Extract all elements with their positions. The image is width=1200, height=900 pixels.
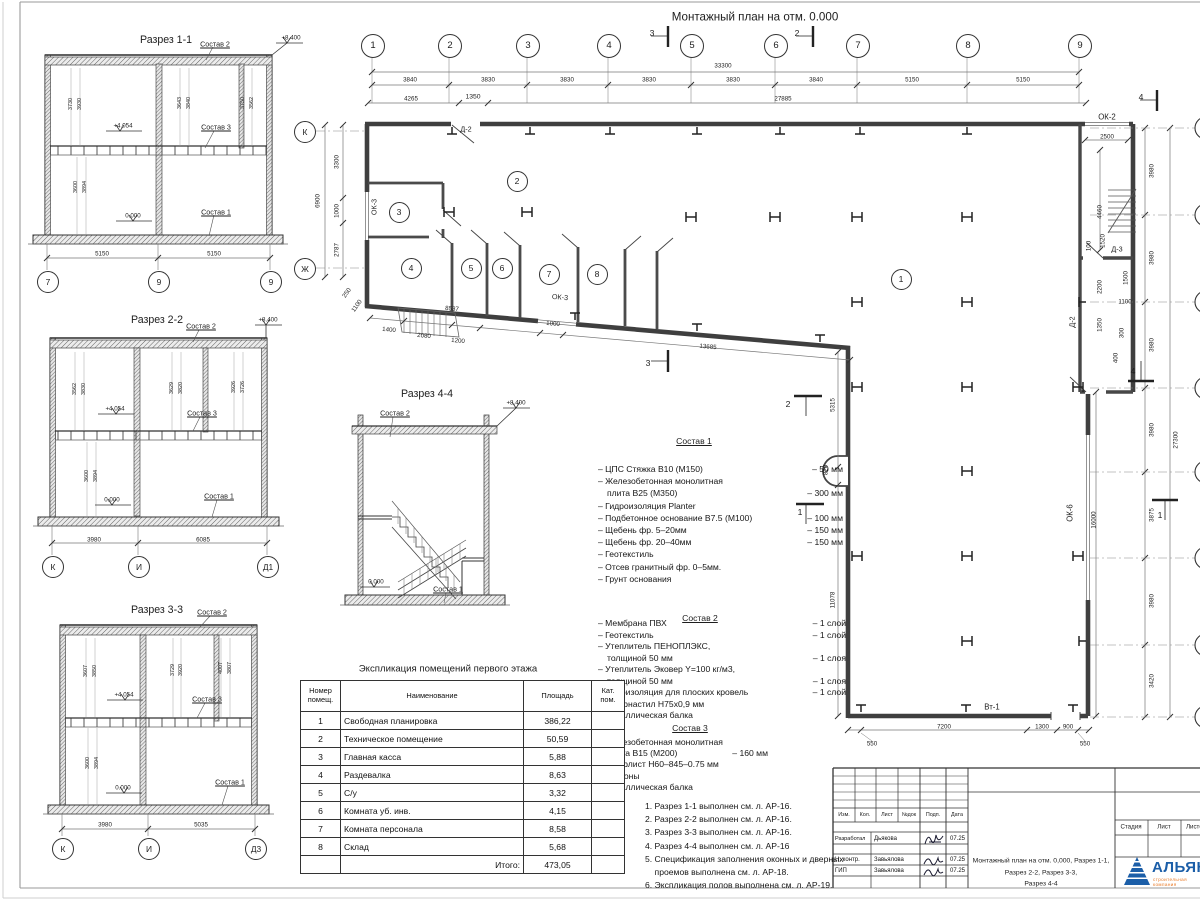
dim-label: 3820 — [178, 382, 184, 394]
dim-label: 6085 — [196, 537, 210, 544]
cell — [592, 856, 625, 874]
dim-label: 11078 — [830, 592, 837, 609]
room-number: 3 — [389, 202, 410, 223]
layer-item: – Подбетонное основание В7.5 (М100)– 100… — [598, 512, 843, 524]
dim-label: 6900 — [315, 194, 322, 208]
stamp-col-header: Кол. — [860, 812, 871, 818]
table-title: Экспликация помещений первого этажа — [359, 664, 537, 675]
note-line: 1. Разрез 1-1 выполнен см. л. АР-16. — [645, 800, 844, 813]
cell: 1 — [301, 712, 341, 730]
stamp-col-header: Подп. — [926, 812, 940, 818]
level-mark: 0.000 — [115, 785, 130, 792]
dim-label: 3830 — [81, 383, 87, 395]
layer-ref: Состав 2 — [200, 40, 230, 49]
section-2-2-drawing — [33, 319, 284, 555]
dim-label: 3750 — [240, 97, 246, 109]
note-line: 5. Спецификация заполнения оконных и две… — [645, 853, 844, 866]
stamp-name: Завьялова — [874, 868, 904, 874]
col-header: Кат. пом. — [592, 681, 625, 712]
dim-label: 3894 — [94, 757, 100, 769]
section-mark: 3 — [650, 28, 655, 38]
stamp-date: 07.25 — [950, 857, 965, 863]
dim-label: 300 — [1119, 328, 1126, 338]
axis-bubble: И — [128, 556, 150, 578]
axis-bubble: 1 — [361, 34, 385, 58]
table-row: 4Раздевалка8,63 — [301, 766, 625, 784]
axis-bubble: К — [42, 556, 64, 578]
room-number: 7 — [539, 264, 560, 285]
dim-label: 3562 — [72, 383, 78, 395]
dim-label: 3980 — [1149, 164, 1156, 178]
cell: 7 — [301, 820, 341, 838]
window-label: ОК-3 — [552, 292, 569, 302]
dim-label: 1350 — [1097, 318, 1104, 332]
note-line: 4. Разрез 4-4 выполнен см. л. АР-16 — [645, 840, 844, 853]
dim-label: 3980 — [98, 822, 112, 829]
layer-item: – Металлическая балка — [598, 710, 846, 722]
dim-label: 3840 — [809, 77, 823, 84]
stamp-col-header: №док — [902, 812, 916, 818]
dim-label: 3840 — [403, 77, 417, 84]
dim-label: 550 — [1080, 741, 1090, 748]
doc-title-line: Разрез 2-2, Разрез 3-3, — [1005, 870, 1077, 877]
axis-bubble: 2 — [438, 34, 462, 58]
layer-item: – Щебень фр. 20–40мм– 150 мм — [598, 536, 843, 548]
layer-item: – Профнастил Н75х0,9 мм — [598, 699, 846, 711]
doc-title-line: Монтажный план на отм. 0,000, Разрез 1-1… — [973, 858, 1110, 865]
dim-label: 5315 — [830, 398, 837, 412]
section-mark: 1 — [1158, 510, 1163, 520]
dim-label: 16000 — [1091, 511, 1098, 528]
stamp-role: Разработал — [835, 836, 865, 842]
cell: 8 — [301, 838, 341, 856]
table-total-row: Итого: 473,05 — [301, 856, 625, 874]
axis-bubble: 7 — [846, 34, 870, 58]
dim-label: 27885 — [774, 96, 791, 103]
stamp-col-header: Лист — [881, 812, 893, 818]
level-mark: 0.000 — [104, 497, 119, 504]
axis-bubble: Д1 — [257, 556, 279, 578]
layer-item: – Утеплитель ПЕНОПЛЭКС, — [598, 641, 846, 653]
section-4-4-drawing — [340, 402, 530, 605]
dim-label: 3840 — [186, 97, 192, 109]
section-mark: 2 — [795, 28, 800, 38]
dim-label: 13685 — [699, 343, 717, 351]
dim-label: 5150 — [1016, 77, 1030, 84]
layer-item: – ЦПС Стяжка В10 (М150)– 50 мм — [598, 463, 843, 475]
door-label: Д-2 — [1068, 316, 1077, 327]
cell: Главная касса — [341, 748, 524, 766]
layer-item: толщиной 50 мм– 1 слоя — [598, 676, 846, 688]
cell: 4 — [301, 766, 341, 784]
door-label: Д-2 — [460, 125, 471, 134]
explication-table: Номер помещ. Наименование Площадь Кат. п… — [300, 680, 625, 874]
cell: 386,22 — [524, 712, 592, 730]
section-3-3-drawing — [43, 616, 274, 836]
layer-item: плита В25 (М350)– 300 мм — [598, 487, 843, 499]
cell — [592, 784, 625, 802]
cell: 3,32 — [524, 784, 592, 802]
table-row: 6Комната уб. инв.4,15 — [301, 802, 625, 820]
dim-label: 1520 — [1100, 234, 1107, 248]
stamp-name: Дьякова — [874, 836, 897, 842]
dim-label: 7200 — [937, 724, 951, 731]
layer-item: – Отсев гранитный фр. 0–5мм. — [598, 561, 843, 573]
layer-item: – Пароизоляция для плоских кровель– 1 сл… — [598, 687, 846, 699]
section-title: Разрез 1-1 — [140, 34, 192, 46]
col-header: Номер помещ. — [301, 681, 341, 712]
window-label: ОК-2 — [1098, 113, 1116, 122]
dim-label: 4265 — [404, 96, 418, 103]
dim-label: 3980 — [1149, 594, 1156, 608]
cell: Комната персонала — [341, 820, 524, 838]
cell: С/у — [341, 784, 524, 802]
section-mark: 4 — [1131, 366, 1136, 376]
gate-label: Вт-1 — [984, 703, 999, 712]
layer-item: – Геотекстиль — [598, 548, 843, 560]
dim-label: 3850 — [92, 665, 98, 677]
axis-bubble: К — [52, 838, 74, 860]
dim-label: 3980 — [1149, 251, 1156, 265]
col-header: Площадь — [524, 681, 592, 712]
cell — [592, 730, 625, 748]
window-label: ОК-6 — [1066, 504, 1075, 522]
table-row: 8Склад5,68 — [301, 838, 625, 856]
layer-ref: Состав 2 — [186, 322, 216, 331]
logo-icon — [1122, 857, 1152, 886]
level-mark: +4.054 — [105, 406, 124, 413]
axis-bubble: 9 — [148, 271, 170, 293]
dim-label: 3807 — [227, 662, 233, 674]
window-label: ОК-3 — [370, 199, 379, 215]
dim-label: 3643 — [177, 97, 183, 109]
room-number: 5 — [461, 258, 482, 279]
level-mark: +8.400 — [506, 400, 525, 407]
dim-label: 1200 — [451, 337, 465, 345]
layer-item: – Щебень фр. 5–20мм– 150 мм — [598, 524, 843, 536]
axis-bubble: 8 — [956, 34, 980, 58]
dim-label: 1350 — [465, 94, 480, 101]
dim-label: 5150 — [95, 251, 109, 258]
stamp-role: ГИП — [835, 868, 847, 874]
section-mark: 2 — [786, 399, 791, 409]
cell — [592, 820, 625, 838]
dim-label: 3607 — [83, 665, 89, 677]
level-mark: +8.400 — [258, 317, 277, 324]
axis-bubble: 3 — [516, 34, 540, 58]
axis-bubble: 6 — [764, 34, 788, 58]
layer-item: – Геотекстиль– 1 слой — [598, 630, 846, 642]
col-header: Наименование — [341, 681, 524, 712]
dim-label: 900 — [1063, 724, 1073, 731]
dim-label: 3830 — [726, 77, 740, 84]
level-mark: +4.054 — [114, 692, 133, 699]
dim-label: 3629 — [169, 382, 175, 394]
stamp-date: 07.25 — [950, 836, 965, 842]
stamp-col-header: Изм. — [838, 812, 850, 818]
room-number: 1 — [891, 269, 912, 290]
note-line: 6. Экспликация полов выполнена см. л. АР… — [645, 879, 844, 892]
note-line: проемов выполнена см. л. АР-18. — [645, 866, 844, 879]
layer-ref: Состав 1 — [215, 778, 245, 787]
room-number: 8 — [587, 264, 608, 285]
dim-label: 1000 — [546, 320, 560, 328]
table-row: 5С/у3,32 — [301, 784, 625, 802]
dim-label: 3894 — [82, 181, 88, 193]
room-number: 2 — [507, 171, 528, 192]
cell: Склад — [341, 838, 524, 856]
stamp-role: Н. контр. — [835, 857, 860, 863]
dim-label: 3980 — [87, 537, 101, 544]
notes-list: 1. Разрез 1-1 выполнен см. л. АР-16.2. Р… — [645, 800, 844, 892]
layer-ref: Состав 1 — [433, 585, 463, 594]
dim-label: 4460 — [1097, 205, 1104, 219]
dim-label: 3926 — [231, 381, 237, 393]
note-line: 3. Разрез 3-3 выполнен см. л. АР-16. — [645, 826, 844, 839]
axis-bubble: 4 — [597, 34, 621, 58]
dim-label: 3729 — [170, 664, 176, 676]
dim-label: 3830 — [481, 77, 495, 84]
table-row: 7Комната персонала8,58 — [301, 820, 625, 838]
note-line: 2. Разрез 2-2 выполнен см. л. АР-16. — [645, 813, 844, 826]
section-title: Разрез 2-2 — [131, 314, 183, 326]
axis-bubble: 9 — [260, 271, 282, 293]
table-row: 3Главная касса5,88 — [301, 748, 625, 766]
dim-label: 1300 — [1035, 724, 1049, 731]
layer-ref: Состав 3 — [187, 409, 217, 418]
dim-label: 5150 — [207, 251, 221, 258]
layer-ref: Состав 1 — [204, 492, 234, 501]
section-title: Разрез 3-3 — [131, 604, 183, 616]
table-row: 2Техническое помещение50,59 — [301, 730, 625, 748]
dim-label: 5035 — [194, 822, 208, 829]
dim-label: 3894 — [93, 470, 99, 482]
cell: 50,59 — [524, 730, 592, 748]
cell: 5 — [301, 784, 341, 802]
cell — [592, 748, 625, 766]
sostav1-list: – ЦПС Стяжка В10 (М150)– 50 мм– Железобе… — [598, 463, 843, 585]
layer-item: – Грунт основания — [598, 573, 843, 585]
level-mark: 0.000 — [368, 579, 383, 586]
plan-title: Монтажный план на отм. 0.000 — [672, 11, 839, 24]
dim-label: 3726 — [240, 381, 246, 393]
dim-label: 3920 — [178, 664, 184, 676]
logo-subtitle: строительная компания — [1153, 877, 1200, 887]
dim-label: 2787 — [334, 243, 341, 257]
dim-label: 3980 — [1149, 338, 1156, 352]
axis-bubble: К — [294, 121, 316, 143]
level-mark: 0.000 — [125, 213, 140, 220]
dim-label: 3875 — [1149, 508, 1156, 522]
dim-label: 2500 — [1100, 134, 1114, 141]
dim-label: 3600 — [73, 181, 79, 193]
dim-label: 3830 — [642, 77, 656, 84]
section-flags — [651, 26, 1178, 524]
sostav3-title: Состав 3 — [672, 723, 708, 733]
dim-label: 1400 — [382, 326, 396, 334]
dim-label: 1500 — [1123, 271, 1130, 285]
stamp-col-header: Дата — [951, 812, 963, 818]
dim-label: 3420 — [1149, 674, 1156, 688]
section-mark: 3 — [646, 358, 651, 368]
dim-label: 550 — [867, 741, 877, 748]
dim-label: 3600 — [84, 470, 90, 482]
stamp-col-header: Листов — [1186, 824, 1200, 831]
layer-ref: Состав 3 — [201, 123, 231, 132]
dim-label: 3830 — [560, 77, 574, 84]
dim-label: 400 — [1113, 353, 1120, 363]
cell — [301, 856, 341, 874]
axis-bubble: Ж — [294, 258, 316, 280]
cell: Техническое помещение — [341, 730, 524, 748]
cell: Комната уб. инв. — [341, 802, 524, 820]
dim-label: 3980 — [1149, 423, 1156, 437]
dim-label: 2080 — [417, 332, 431, 340]
dim-label: 3300 — [334, 155, 341, 169]
sostav1-title: Состав 1 — [676, 436, 712, 446]
dim-label: 5150 — [905, 77, 919, 84]
dim-label: 2200 — [1097, 280, 1104, 294]
dim-label: 1100 — [1118, 299, 1131, 306]
right-axis-bubbles — [1195, 117, 1200, 728]
stamp-col-header: Стадия — [1120, 824, 1141, 831]
table-header-row: Номер помещ. Наименование Площадь Кат. п… — [301, 681, 625, 712]
axis-bubble: Д3 — [245, 838, 267, 860]
dim-label: 27300 — [1173, 431, 1180, 448]
dim-label: 3730 — [68, 98, 74, 110]
logo-text: АЛЬЯНС — [1152, 859, 1200, 876]
stamp-name: Завьялова — [874, 857, 904, 863]
layer-ref: Состав 3 — [192, 695, 222, 704]
axis-bubble: 7 — [37, 271, 59, 293]
doc-title-line: Разрез 4-4 — [1024, 881, 1057, 888]
stamp-date: 07.25 — [950, 868, 965, 874]
dim-label: 100 — [1086, 241, 1093, 251]
cell: 3 — [301, 748, 341, 766]
level-mark: +4.054 — [113, 123, 132, 130]
cell — [592, 712, 625, 730]
dim-label: 3930 — [77, 98, 83, 110]
table-row: 1Свободная планировка386,22 — [301, 712, 625, 730]
door-label: Д-3 — [1111, 245, 1122, 254]
cell — [592, 838, 625, 856]
stamp-col-header: Лист — [1157, 824, 1170, 831]
cell: Свободная планировка — [341, 712, 524, 730]
dim-label: 3562 — [249, 97, 255, 109]
cell: 8,63 — [524, 766, 592, 784]
dim-label: 4007 — [218, 662, 224, 674]
room-number: 6 — [492, 258, 513, 279]
section-mark: 4 — [1139, 92, 1144, 102]
cell — [592, 766, 625, 784]
dim-label: 33300 — [714, 63, 731, 70]
section-1-1-drawing — [28, 37, 303, 270]
cell: 5,68 — [524, 838, 592, 856]
partitions — [368, 183, 657, 329]
layer-ref: Состав 1 — [201, 208, 231, 217]
cell: 4,15 — [524, 802, 592, 820]
cell — [592, 802, 625, 820]
cell: 2 — [301, 730, 341, 748]
dim-label: 3600 — [85, 757, 91, 769]
sostav2-list: – Мембрана ПВХ– 1 слой– Геотекстиль– 1 с… — [598, 618, 846, 722]
layer-item: – Утеплитель Эковер Y=100 кг/м3, — [598, 664, 846, 676]
axis-bubble: 9 — [1068, 34, 1092, 58]
total-label: Итого: — [341, 856, 524, 874]
layer-item: – Мембрана ПВХ– 1 слой — [598, 618, 846, 630]
total-value: 473,05 — [524, 856, 592, 874]
room-number: 4 — [401, 258, 422, 279]
signature — [924, 835, 943, 876]
axis-bubble: И — [138, 838, 160, 860]
cell: Раздевалка — [341, 766, 524, 784]
dim-label: 1000 — [334, 204, 341, 218]
layer-ref: Состав 2 — [380, 409, 410, 418]
cell: 8,58 — [524, 820, 592, 838]
axis-bubble: 5 — [680, 34, 704, 58]
layer-item: – Железобетонная монолитная — [598, 475, 843, 487]
layer-ref: Состав 2 — [197, 608, 227, 617]
layer-item: толщиной 50 мм– 1 слоя — [598, 653, 846, 665]
section-title: Разрез 4-4 — [401, 388, 453, 400]
cell: 6 — [301, 802, 341, 820]
layer-item: – Гидроизоляция Planter — [598, 500, 843, 512]
drawing-sheet: { "plan": { "title": "Монтажный план на … — [0, 0, 1200, 900]
cell: 5,88 — [524, 748, 592, 766]
dim-label: 8537 — [445, 305, 459, 313]
level-mark: +8.400 — [281, 35, 300, 42]
